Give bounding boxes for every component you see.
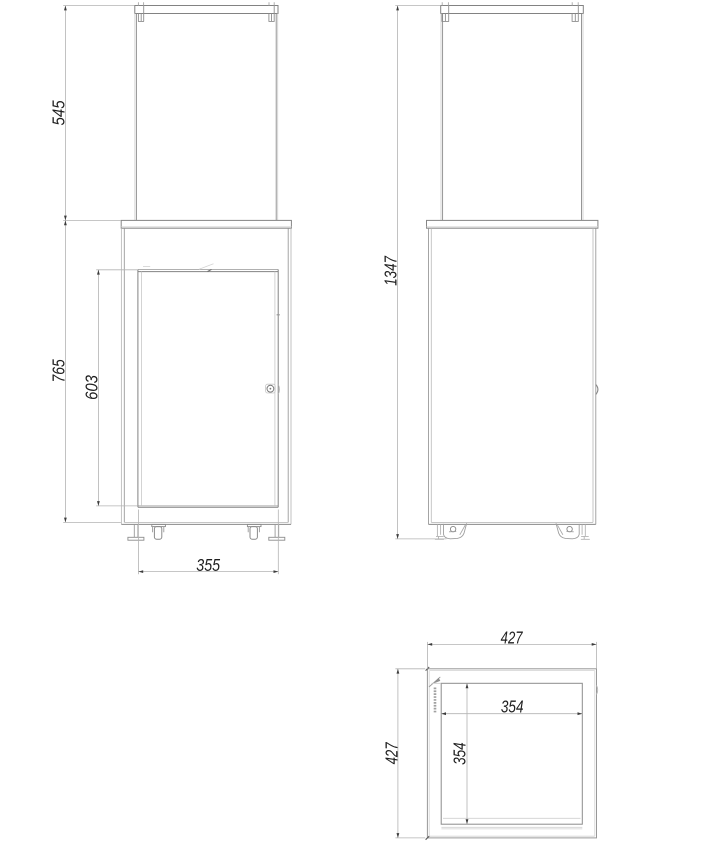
svg-text:1347: 1347 [381,255,401,286]
svg-text:427: 427 [501,628,524,648]
svg-text:765: 765 [49,359,69,382]
svg-text:427: 427 [382,741,402,764]
svg-text:545: 545 [49,100,69,125]
svg-text:354: 354 [501,696,524,716]
svg-text:355: 355 [196,555,220,575]
svg-text:603: 603 [82,375,102,400]
svg-text:354: 354 [450,742,470,765]
